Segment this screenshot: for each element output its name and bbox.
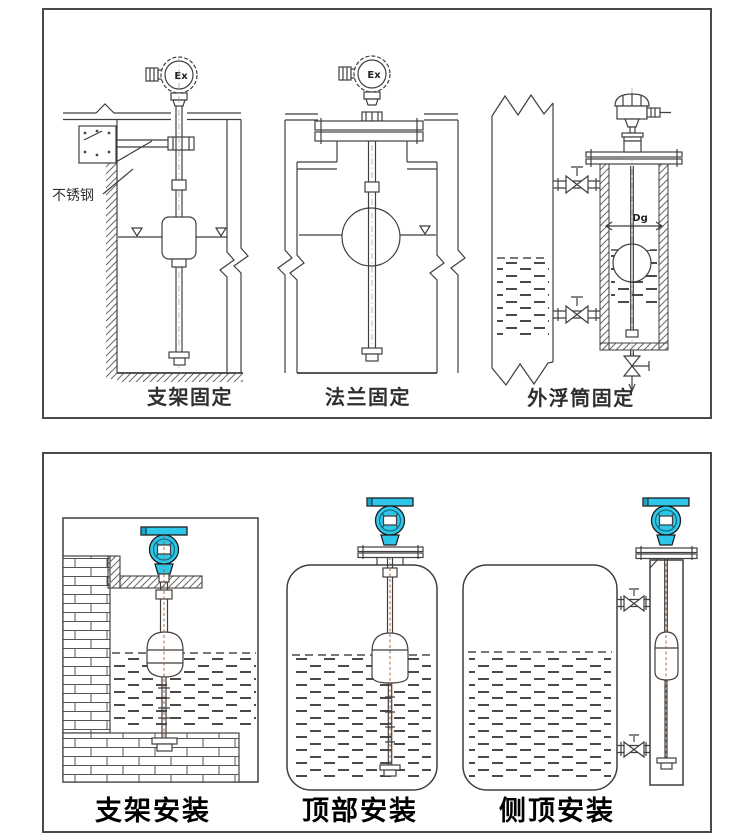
tank-wall-right-outer (451, 120, 465, 373)
installation-methods-drawing: 支架安装 (44, 454, 710, 831)
panel-fixing-methods: Ex (42, 8, 712, 419)
caption-bracket-fixing: 支架固定 (147, 385, 233, 409)
sphere-float (342, 208, 400, 266)
tank-wall-right-inner (430, 169, 444, 373)
water (469, 655, 611, 780)
caption-flange-fixing: 法兰固定 (325, 385, 411, 409)
stainless-steel-annotation: 不锈钢 (52, 169, 133, 204)
transmitter-head-ex: Ex (339, 56, 390, 121)
lower-isolation-valve (617, 735, 650, 757)
ex-label-left: Ex (174, 71, 188, 82)
drain-valve (624, 350, 649, 391)
tank-roof-nozzle (297, 141, 437, 169)
diagram-flange-fixing: Ex (278, 56, 465, 409)
mounting-flange (636, 546, 697, 560)
diagram-top-installation: 顶部安装 (287, 498, 437, 827)
ex-label-middle: Ex (367, 70, 381, 81)
diagram-side-top-installation: 侧顶安装 (463, 498, 697, 827)
mounting-flange (358, 545, 423, 565)
vessel-liquid (497, 262, 549, 338)
water (293, 658, 431, 780)
dg-dimension: Dg (606, 213, 662, 230)
diagram-bracket-installation: 支架安装 (63, 518, 258, 827)
lower-isolation-valve (553, 297, 600, 323)
caption-top-installation: 顶部安装 (302, 795, 418, 827)
mounting-bracket (79, 126, 194, 163)
brick-wall (63, 556, 110, 733)
sphere-float (613, 244, 651, 282)
dg-label: Dg (632, 213, 647, 224)
float (655, 632, 678, 680)
screenshot: Ex (0, 0, 750, 840)
transmitter-head-ex: Ex (146, 57, 197, 106)
upper-isolation-valve (617, 589, 650, 611)
diagram-external-chamber-fixing: Dg (492, 88, 682, 410)
caption-side-top-installation: 侧顶安装 (499, 796, 615, 827)
stainless-steel-label: 不锈钢 (52, 188, 94, 204)
diagram-bracket-fixing: Ex (52, 56, 248, 409)
transmitter-head (367, 498, 413, 545)
caption-bracket-installation: 支架安装 (95, 796, 211, 827)
tank-rim (63, 104, 241, 120)
tank-walls (220, 120, 248, 374)
tank-bottom (117, 373, 243, 382)
fixing-methods-drawing: Ex (44, 10, 710, 417)
panel-installation-methods: 支架安装 (42, 452, 712, 833)
mounting-flange (315, 118, 423, 144)
transmitter-head (643, 498, 689, 545)
water (112, 656, 256, 730)
caption-external-chamber-fixing: 外浮筒固定 (527, 386, 635, 410)
upper-isolation-valve (553, 167, 600, 193)
float (147, 632, 183, 677)
brick-floor (63, 733, 239, 782)
tank-wall-left-inner (290, 169, 304, 373)
tank-wall-left-outer (278, 120, 292, 373)
process-vessel (492, 95, 553, 385)
